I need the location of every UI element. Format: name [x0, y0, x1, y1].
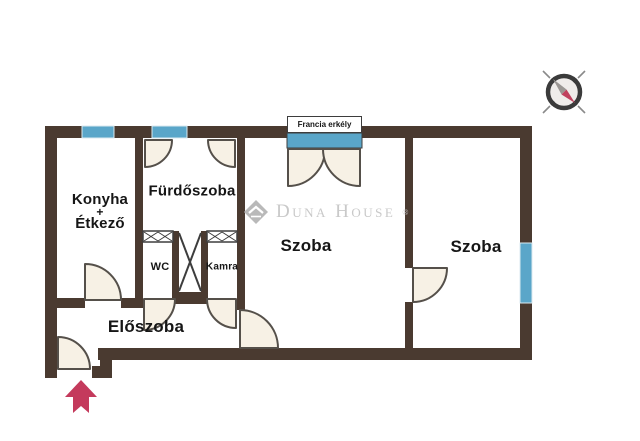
vent-hatches [143, 231, 237, 242]
wall-kitchen-hall-left [57, 298, 85, 308]
wall-left [45, 126, 57, 378]
watermark: Duna House ® [243, 199, 408, 225]
watermark-brand: Duna House [276, 201, 395, 223]
wall-room-room-lower [405, 302, 413, 348]
door-pantry [207, 299, 236, 328]
window-room-right [520, 243, 532, 303]
window-bathroom [152, 126, 187, 138]
casement-bathroom-left [145, 140, 172, 167]
floor-plan-page: Duna House ® Konyha + Étkező Fürdőszoba … [0, 0, 640, 441]
vent-hatch-pantry [207, 231, 237, 242]
door-room-to-room [413, 268, 447, 302]
french-door-right [323, 149, 360, 186]
doors [58, 140, 447, 369]
watermark-registered: ® [402, 208, 408, 217]
door-kitchen [85, 264, 121, 300]
window-kitchen [82, 126, 114, 138]
entrance-arrow-icon [65, 380, 97, 413]
door-entrance [58, 337, 90, 369]
wall-entrance-ledge [92, 366, 112, 378]
duna-house-diamond-icon [243, 199, 269, 225]
window-french-balcony [287, 133, 362, 148]
door-wc [144, 299, 175, 330]
vent-hatch-wc [143, 231, 173, 242]
wall-kitchen-bathroom [135, 138, 143, 308]
wall-shaft-bottom [172, 292, 208, 304]
casement-bathroom-right [208, 140, 235, 167]
french-balcony-label-box: Francia erkély [287, 116, 362, 133]
shaft-cross [179, 233, 201, 291]
wall-kitchen-hall-right [121, 298, 143, 308]
wall-bottom [98, 348, 532, 360]
door-hall-to-room [240, 310, 278, 348]
french-balcony-label: Francia erkély [298, 120, 352, 129]
compass-rose-icon [543, 71, 585, 113]
french-door-left [288, 149, 325, 186]
